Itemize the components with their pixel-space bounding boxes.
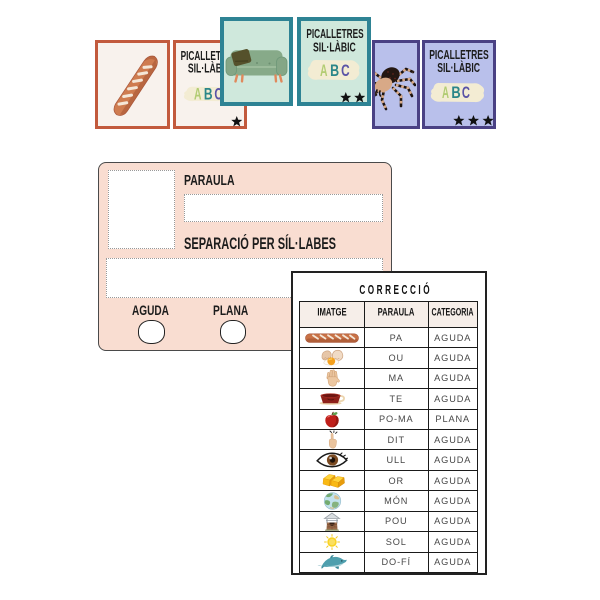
svg-text:SIL·LÀBIC: SIL·LÀBIC (437, 60, 480, 75)
svg-text:SIL·LÀBIC: SIL·LÀBIC (313, 40, 356, 55)
svg-text:IMATGE: IMATGE (317, 306, 346, 318)
svg-text:B: B (330, 61, 339, 80)
svg-text:C: C (341, 61, 350, 80)
svg-text:B: B (204, 85, 213, 104)
svg-text:A: A (442, 83, 449, 102)
svg-text:PARAULA: PARAULA (378, 306, 415, 318)
svg-text:C: C (462, 83, 470, 102)
svg-text:B: B (451, 83, 460, 102)
svg-text:A: A (194, 85, 202, 104)
svg-text:A: A (320, 61, 328, 80)
svg-text:CATEGORIA: CATEGORIA (432, 306, 474, 318)
